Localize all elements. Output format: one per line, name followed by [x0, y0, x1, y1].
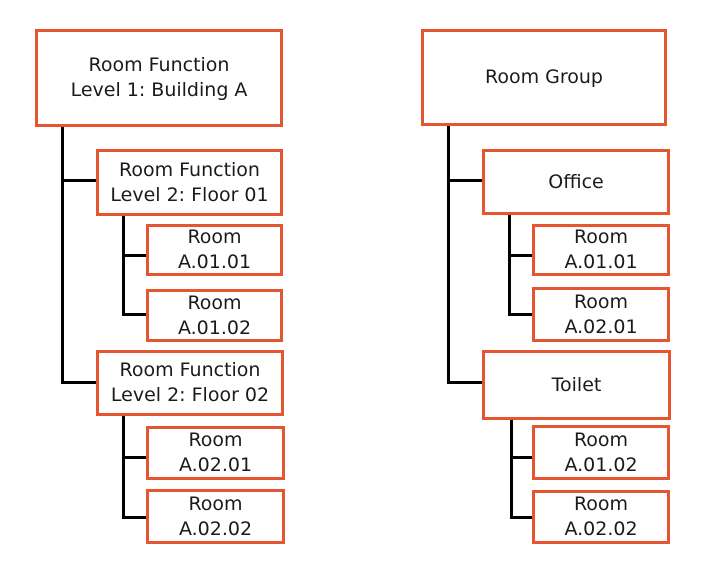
node-room-a-01-02-right: Room A.01.02	[532, 425, 670, 480]
node-room-a-01-01-right: Room A.01.01	[532, 224, 670, 276]
node-room-function-level2-floor-01: Room Function Level 2: Floor 01	[96, 149, 283, 216]
connector-line	[508, 215, 511, 316]
diagram-canvas: Room Function Level 1: Building A Room F…	[0, 0, 728, 565]
connector-line	[122, 254, 146, 257]
connector-line	[122, 516, 146, 519]
node-toilet: Toilet	[482, 350, 671, 420]
connector-line	[510, 516, 532, 519]
connector-line	[510, 420, 513, 519]
node-room-a-02-02-left: Room A.02.02	[146, 489, 285, 544]
node-room-group: Room Group	[421, 29, 667, 126]
connector-line	[122, 313, 146, 316]
connector-line	[61, 381, 96, 384]
connector-line	[447, 381, 482, 384]
node-room-a-02-01-left: Room A.02.01	[146, 426, 285, 480]
connector-line	[61, 127, 64, 384]
node-room-a-01-01-left: Room A.01.01	[146, 224, 283, 276]
node-room-a-02-02-right: Room A.02.02	[532, 490, 670, 544]
node-room-a-02-01-right: Room A.02.01	[532, 287, 670, 342]
connector-line	[447, 179, 482, 182]
connector-line	[122, 416, 125, 519]
node-room-function-level2-floor-02: Room Function Level 2: Floor 02	[96, 350, 284, 416]
node-office: Office	[482, 149, 670, 215]
connector-line	[508, 254, 532, 257]
connector-line	[122, 216, 125, 316]
connector-line	[61, 179, 96, 182]
node-room-a-01-02-left: Room A.01.02	[146, 289, 283, 342]
connector-line	[510, 456, 532, 459]
connector-line	[122, 456, 146, 459]
connector-line	[508, 313, 532, 316]
node-room-function-level1-building-a: Room Function Level 1: Building A	[35, 29, 283, 127]
connector-line	[447, 126, 450, 384]
